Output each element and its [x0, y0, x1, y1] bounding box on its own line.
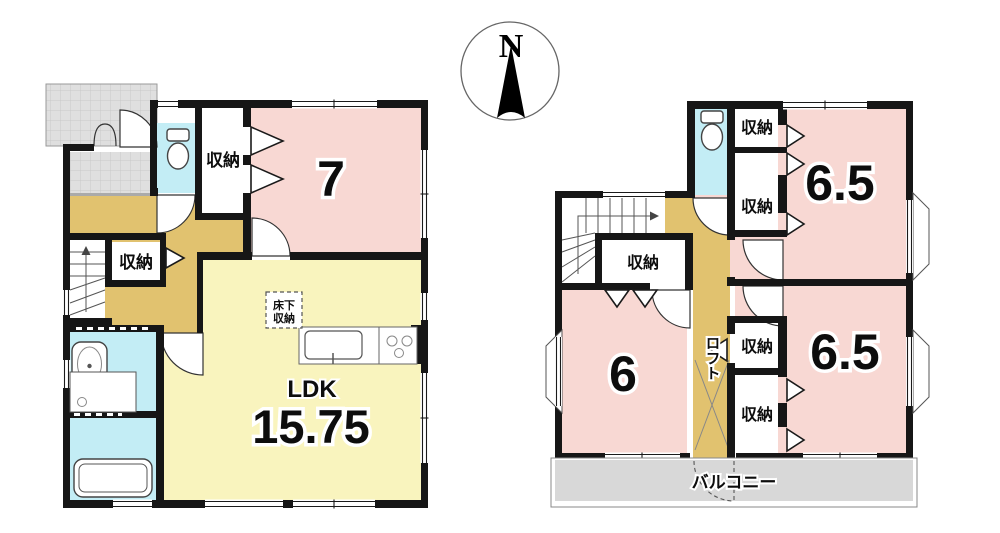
underfloor-storage-label-2: 収納: [273, 311, 295, 325]
genkan-step-line: [70, 193, 157, 196]
toilet-icon: [167, 129, 189, 169]
room65-bottom-size-label: 6.5: [810, 324, 880, 380]
floorplan-svg: 床下 収納 収納 収納 7 LDK 15.75: [0, 0, 1000, 533]
bay-window: [906, 330, 929, 413]
ldk-size-label: 15.75: [252, 400, 370, 453]
window: [292, 100, 377, 109]
window: [783, 101, 867, 110]
kitchen-counter-icon: [299, 327, 417, 364]
room6-size-label: 6: [609, 346, 637, 402]
storage-label: 収納: [741, 405, 773, 424]
window: [421, 373, 429, 463]
storage-label: 収納: [741, 118, 773, 137]
second-floor-plan: 収納 収納 収納 収納 収納 6.5 6.5 6 ロフト バルコニー: [546, 101, 929, 508]
storage-label: 収納: [119, 252, 153, 272]
window: [421, 150, 429, 238]
bay-window: [906, 193, 929, 280]
window: [113, 500, 152, 509]
underfloor-storage-label-1: 床下: [273, 298, 295, 312]
window: [63, 290, 71, 315]
balcony-label: バルコニー: [692, 473, 777, 492]
window: [603, 191, 665, 199]
loft-label: ロフト: [704, 336, 721, 381]
window: [205, 500, 283, 509]
storage-label: 収納: [206, 150, 240, 170]
bay-window: [546, 330, 562, 413]
compass: N: [461, 22, 559, 120]
storage-label: 収納: [741, 337, 773, 356]
storage-label: 収納: [627, 253, 659, 272]
window: [158, 100, 178, 109]
window: [293, 500, 375, 509]
ldk-label: LDK: [287, 376, 337, 403]
room7-size-label: 7: [317, 151, 345, 207]
bathtub-icon: [74, 459, 152, 497]
washer-pan-icon: [70, 372, 136, 412]
closet5-floor: [735, 153, 778, 230]
window: [421, 293, 429, 320]
first-floor-plan: 床下 収納 収納 収納 7 LDK 15.75: [46, 84, 429, 509]
genkan-floor: [70, 152, 157, 196]
room65-top-size-label: 6.5: [805, 155, 875, 211]
window: [63, 360, 71, 388]
floorplan-canvas: 床下 収納 収納 収納 7 LDK 15.75: [0, 0, 1000, 533]
toilet-icon: [701, 111, 723, 150]
storage-label: 収納: [741, 197, 773, 216]
hallway-floor-2: [195, 218, 251, 253]
